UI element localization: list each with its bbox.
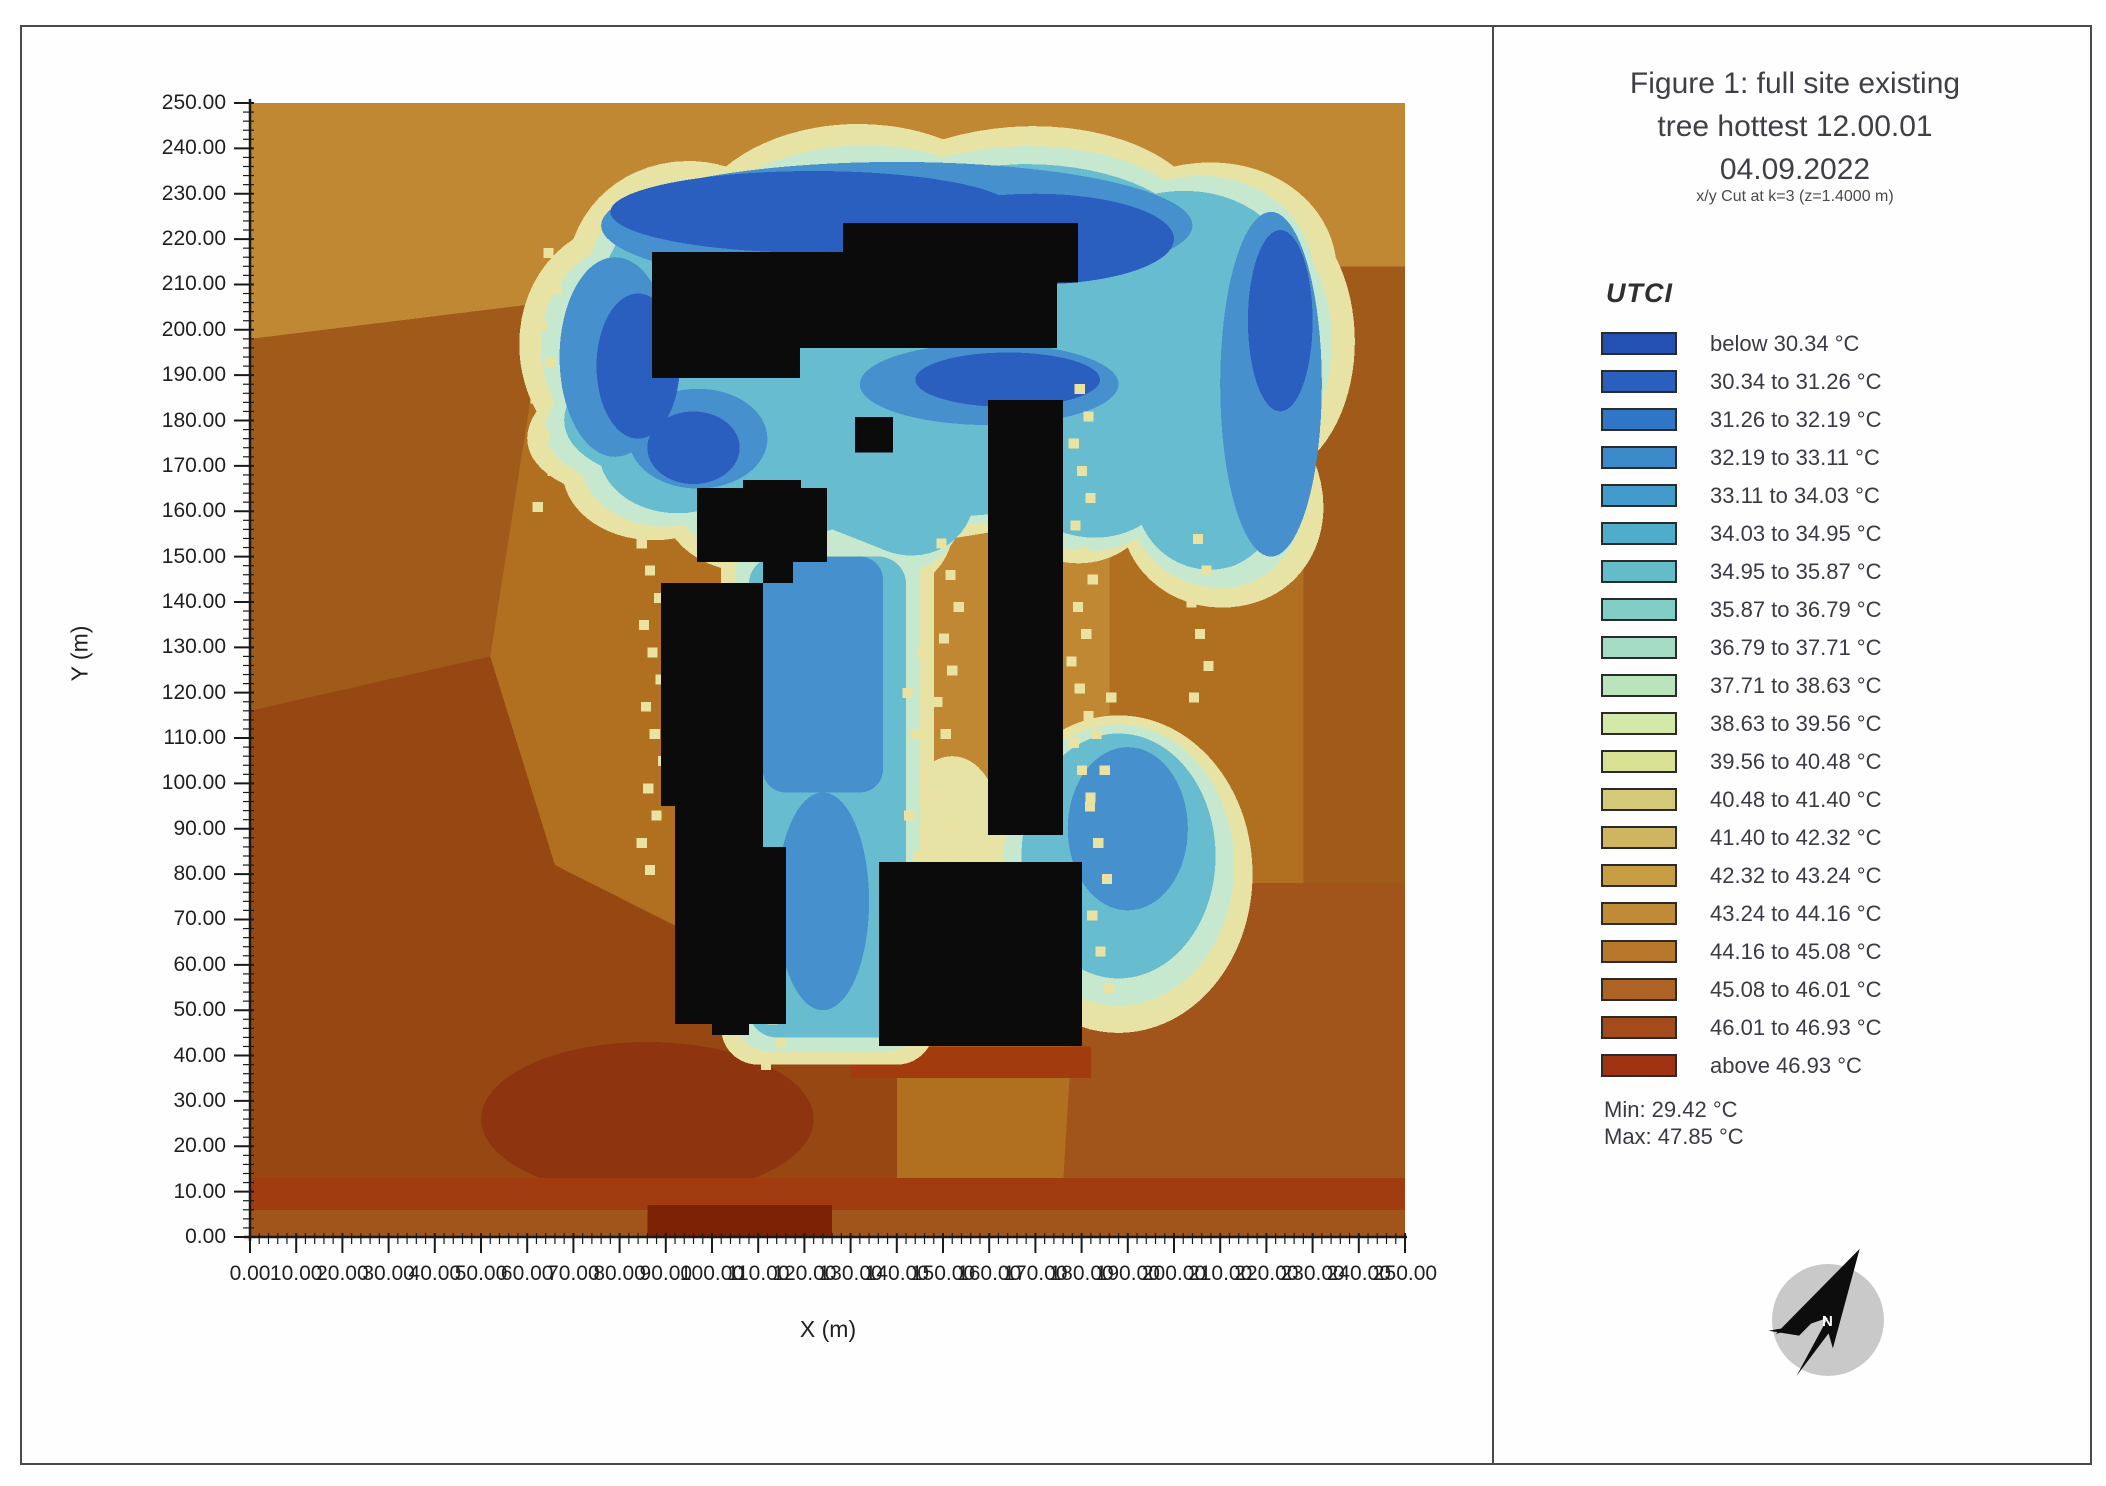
- legend-row: 31.26 to 32.19 °C: [1601, 408, 1881, 431]
- legend-label: 38.63 to 39.56 °C: [1710, 711, 1881, 737]
- legend-label: 43.24 to 44.16 °C: [1710, 901, 1881, 927]
- cut-plane-subtitle: x/y Cut at k=3 (z=1.4000 m): [1550, 188, 2040, 206]
- y-tick-label: 160.00: [116, 499, 226, 523]
- y-tick-label: 60.00: [116, 953, 226, 977]
- legend-label: 37.71 to 38.63 °C: [1710, 673, 1881, 699]
- north-arrow-compass: N: [1756, 1236, 1906, 1406]
- legend-swatch: [1601, 484, 1677, 507]
- x-axis-title: X (m): [768, 1316, 888, 1343]
- y-tick-label: 180.00: [116, 409, 226, 433]
- legend-row: 42.32 to 43.24 °C: [1601, 864, 1881, 887]
- y-tick-label: 140.00: [116, 590, 226, 614]
- legend-label: 33.11 to 34.03 °C: [1710, 483, 1880, 509]
- panel-divider: [1492, 25, 1494, 1463]
- y-tick-label: 90.00: [116, 817, 226, 841]
- legend-swatch: [1601, 636, 1677, 659]
- legend-swatch: [1601, 712, 1677, 735]
- building-east-tower: [988, 400, 1063, 835]
- y-tick-label: 210.00: [116, 272, 226, 296]
- legend-label: 32.19 to 33.11 °C: [1710, 445, 1880, 471]
- legend-swatch: [1601, 978, 1677, 1001]
- legend-swatch: [1601, 1016, 1677, 1039]
- legend-swatch: [1601, 598, 1677, 621]
- y-tick-label: 50.00: [116, 998, 226, 1022]
- legend-swatch: [1601, 902, 1677, 925]
- y-tick-label: 30.00: [116, 1089, 226, 1113]
- legend-swatch: [1601, 560, 1677, 583]
- legend-row: 32.19 to 33.11 °C: [1601, 446, 1881, 469]
- y-tick-label: 250.00: [116, 91, 226, 115]
- figure-title-line2: tree hottest 12.00.01: [1550, 105, 2040, 148]
- min-value: Min: 29.42 °C: [1604, 1096, 1744, 1123]
- legend-row: 46.01 to 46.93 °C: [1601, 1016, 1881, 1039]
- legend-row: 30.34 to 31.26 °C: [1601, 370, 1881, 393]
- legend-row: 36.79 to 37.71 °C: [1601, 636, 1881, 659]
- figure-title-line3: 04.09.2022: [1550, 148, 2040, 191]
- legend-swatch: [1601, 674, 1677, 697]
- legend-row: 35.87 to 36.79 °C: [1601, 598, 1881, 621]
- y-tick-label: 130.00: [116, 635, 226, 659]
- legend-row: 33.11 to 34.03 °C: [1601, 484, 1881, 507]
- building-south-east-block: [879, 862, 1082, 1046]
- legend-row: 37.71 to 38.63 °C: [1601, 674, 1881, 697]
- building-small-square: [855, 417, 893, 453]
- legend-swatch: [1601, 408, 1677, 431]
- legend-row: 34.95 to 35.87 °C: [1601, 560, 1881, 583]
- y-tick-label: 70.00: [116, 907, 226, 931]
- legend-row: 40.48 to 41.40 °C: [1601, 788, 1881, 811]
- x-tick-label: 250.00: [1363, 1262, 1447, 1286]
- legend-swatch: [1601, 788, 1677, 811]
- legend-label: 39.56 to 40.48 °C: [1710, 749, 1881, 775]
- legend-swatch: [1601, 522, 1677, 545]
- legend-row: 45.08 to 46.01 °C: [1601, 978, 1881, 1001]
- legend-label: 41.40 to 42.32 °C: [1710, 825, 1881, 851]
- y-tick-label: 190.00: [116, 363, 226, 387]
- legend-label: 34.95 to 35.87 °C: [1710, 559, 1881, 585]
- legend-label: 34.03 to 34.95 °C: [1710, 521, 1881, 547]
- y-axis-title: Y (m): [67, 604, 94, 704]
- legend-row: 43.24 to 44.16 °C: [1601, 902, 1881, 925]
- legend-label: 31.26 to 32.19 °C: [1710, 407, 1881, 433]
- legend-swatch: [1601, 940, 1677, 963]
- figure-title: Figure 1: full site existing tree hottes…: [1550, 62, 2040, 191]
- legend-label: 40.48 to 41.40 °C: [1710, 787, 1881, 813]
- y-tick-label: 170.00: [116, 454, 226, 478]
- legend-label: above 46.93 °C: [1710, 1053, 1862, 1079]
- legend-row: 39.56 to 40.48 °C: [1601, 750, 1881, 773]
- utci-heatmap: [250, 103, 1405, 1237]
- legend-swatch: [1601, 370, 1677, 393]
- y-tick-label: 10.00: [116, 1180, 226, 1204]
- legend-row: 38.63 to 39.56 °C: [1601, 712, 1881, 735]
- legend-row: below 30.34 °C: [1601, 332, 1881, 355]
- legend-label: 45.08 to 46.01 °C: [1710, 977, 1881, 1003]
- figure-title-line1: Figure 1: full site existing: [1550, 62, 2040, 105]
- y-tick-label: 40.00: [116, 1044, 226, 1068]
- legend-row: 34.03 to 34.95 °C: [1601, 522, 1881, 545]
- y-tick-label: 20.00: [116, 1134, 226, 1158]
- legend-swatch: [1601, 864, 1677, 887]
- legend-label: 36.79 to 37.71 °C: [1710, 635, 1881, 661]
- compass-north-letter: N: [1822, 1313, 1833, 1330]
- legend-swatch: [1601, 1054, 1677, 1077]
- legend-label: below 30.34 °C: [1710, 331, 1859, 357]
- y-tick-label: 0.00: [116, 1225, 226, 1249]
- y-tick-label: 230.00: [116, 182, 226, 206]
- legend-swatch: [1601, 446, 1677, 469]
- legend-swatch: [1601, 826, 1677, 849]
- y-tick-label: 110.00: [116, 726, 226, 750]
- y-tick-label: 240.00: [116, 136, 226, 160]
- legend-row: 44.16 to 45.08 °C: [1601, 940, 1881, 963]
- legend-label: 35.87 to 36.79 °C: [1710, 597, 1881, 623]
- legend-swatch: [1601, 750, 1677, 773]
- legend-label: 46.01 to 46.93 °C: [1710, 1015, 1881, 1041]
- legend-row: above 46.93 °C: [1601, 1054, 1881, 1077]
- y-tick-label: 80.00: [116, 862, 226, 886]
- building-north-west-slab: [652, 252, 800, 378]
- y-tick-label: 150.00: [116, 545, 226, 569]
- legend-title: UTCI: [1606, 278, 1673, 309]
- max-value: Max: 47.85 °C: [1604, 1123, 1744, 1150]
- y-tick-label: 200.00: [116, 318, 226, 342]
- legend-swatch: [1601, 332, 1677, 355]
- y-tick-label: 220.00: [116, 227, 226, 251]
- legend-label: 42.32 to 43.24 °C: [1710, 863, 1881, 889]
- y-tick-label: 120.00: [116, 681, 226, 705]
- min-max-values: Min: 29.42 °C Max: 47.85 °C: [1604, 1096, 1744, 1150]
- utci-legend: below 30.34 °C30.34 to 31.26 °C31.26 to …: [1601, 332, 1881, 1092]
- legend-label: 44.16 to 45.08 °C: [1710, 939, 1881, 965]
- y-tick-label: 100.00: [116, 771, 226, 795]
- legend-label: 30.34 to 31.26 °C: [1710, 369, 1881, 395]
- legend-row: 41.40 to 42.32 °C: [1601, 826, 1881, 849]
